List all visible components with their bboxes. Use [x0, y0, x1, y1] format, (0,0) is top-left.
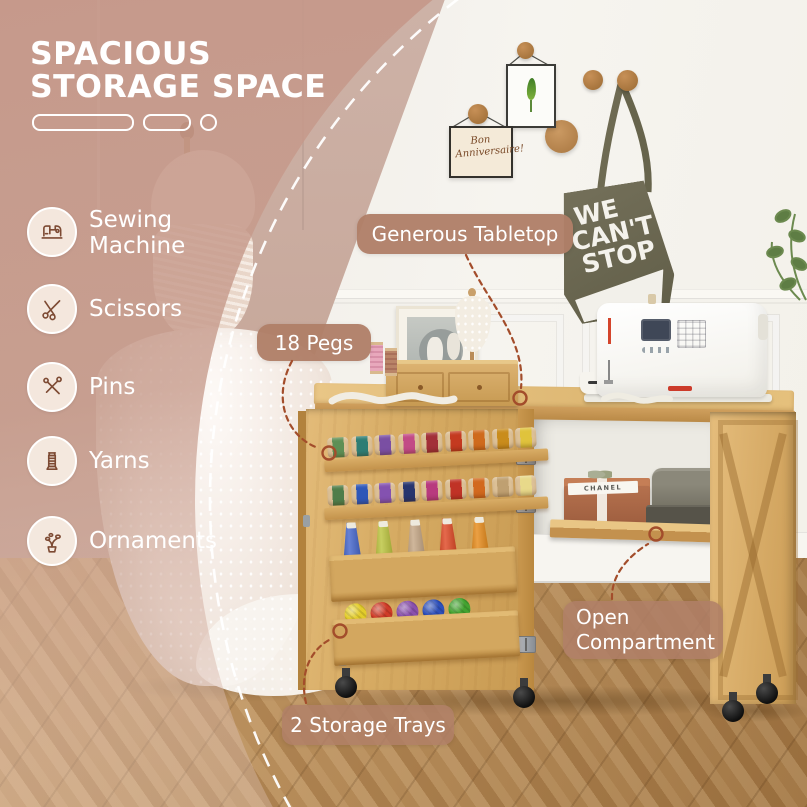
feature-label: Pins	[89, 362, 229, 412]
feature-item-sewing-machine: Sewing Machine	[27, 207, 229, 259]
sewing-box-drawer	[448, 372, 510, 402]
sewing-machine-buttons	[677, 320, 706, 348]
thread-spool	[374, 434, 396, 455]
feature-item-pins: Pins	[27, 362, 229, 412]
thread-spool	[468, 478, 490, 499]
sewing-machine-presser-foot	[604, 380, 613, 384]
thread-spool	[421, 480, 443, 501]
feature-icon-circle	[27, 516, 77, 566]
decor-pill	[32, 114, 134, 131]
callout-2-storage-trays: 2 Storage Trays	[282, 705, 454, 745]
thread-spool	[327, 485, 349, 506]
frame-handwriting: Bon Anniversaire!	[454, 133, 508, 161]
sewing-machine-button-row	[642, 347, 674, 353]
thread-spool-pink	[370, 342, 383, 374]
sewing-machine-brand-mark	[668, 386, 692, 391]
sewing-machine-red-accent	[608, 318, 611, 344]
thread-spool-brown	[385, 348, 397, 376]
sewing-machine-display	[641, 319, 671, 341]
caster-wheel	[335, 668, 357, 698]
thread-spool	[468, 430, 490, 451]
sewing-box-drawer	[396, 372, 444, 402]
feature-item-ornaments: Ornaments	[27, 516, 229, 566]
thread-spool	[350, 436, 372, 457]
title-underline-decor	[32, 114, 217, 131]
title-line-2: STORAGE SPACE	[30, 71, 326, 104]
leaf-stem	[530, 100, 532, 112]
gift-box-bow	[588, 468, 612, 481]
barn-door-panel	[710, 412, 796, 704]
decor-pill	[143, 114, 191, 131]
feature-icon-circle	[27, 436, 77, 486]
sewing-machine-icon	[39, 219, 65, 245]
sewing-machine-spool-pin	[648, 294, 656, 304]
callout-open-compartment: Open Compartment	[563, 601, 723, 659]
feature-label: Yarns	[89, 436, 229, 486]
tote-bag-print: WE CAN'T STOP	[562, 189, 661, 278]
thread-spool	[350, 484, 372, 505]
thread-spool	[397, 481, 419, 502]
thread-spool	[444, 479, 466, 500]
sewing-machine-handwheel	[758, 314, 768, 340]
title-line-1: SPACIOUS	[30, 38, 326, 71]
greeting-picture-frame: Bon Anniversaire!	[449, 126, 513, 178]
wall-peg-knob	[617, 70, 638, 91]
product-infographic: Bon Anniversaire! WE CAN'T STOP	[0, 0, 807, 807]
thread-spool	[491, 476, 513, 497]
feature-icon-circle	[27, 362, 77, 412]
storage-tray-upper	[329, 546, 517, 602]
thread-spool	[491, 428, 513, 449]
thread-spool	[327, 437, 349, 458]
wall-peg-knob	[517, 42, 534, 59]
pink-wall-molding	[302, 0, 304, 230]
sewing-box	[386, 364, 518, 406]
callout-18-pegs: 18 Pegs	[257, 324, 371, 361]
caster-wheel	[722, 692, 744, 722]
thread-spool	[444, 431, 466, 452]
feature-icon-circle	[27, 284, 77, 334]
thread-spool	[374, 482, 396, 503]
sewing-machine	[597, 303, 767, 397]
decor-dot	[200, 114, 217, 131]
sewing-machine-needle	[608, 360, 610, 382]
leaf-picture-frame	[506, 64, 556, 128]
leaf-art	[526, 78, 536, 100]
plant-ornament-icon	[39, 528, 65, 554]
cabinet-latch	[303, 515, 310, 527]
feature-icon-circle	[27, 207, 77, 257]
feature-item-scissors: Scissors	[27, 284, 229, 334]
scissors-icon	[39, 296, 65, 322]
thread-spool	[421, 432, 443, 453]
caster-wheel	[756, 674, 778, 704]
thread-spool	[397, 433, 419, 454]
feature-label: Sewing Machine	[89, 207, 229, 259]
pins-icon	[39, 374, 65, 400]
storage-tray-lower	[332, 610, 520, 666]
page-title: SPACIOUS STORAGE SPACE	[30, 38, 326, 104]
feature-label: Ornaments	[89, 516, 229, 566]
feature-item-yarns: Yarns	[27, 436, 229, 486]
thread-spool	[515, 427, 537, 448]
wall-peg-knob	[583, 70, 603, 90]
feature-label: Scissors	[89, 284, 229, 334]
wall-peg-knob	[468, 104, 488, 124]
ribbon-band: CHANEL	[568, 481, 638, 495]
caster-wheel	[513, 678, 535, 708]
callout-generous-tabletop: Generous Tabletop	[357, 214, 573, 254]
yarn-spool-icon	[39, 448, 65, 474]
thread-spool	[515, 475, 537, 496]
